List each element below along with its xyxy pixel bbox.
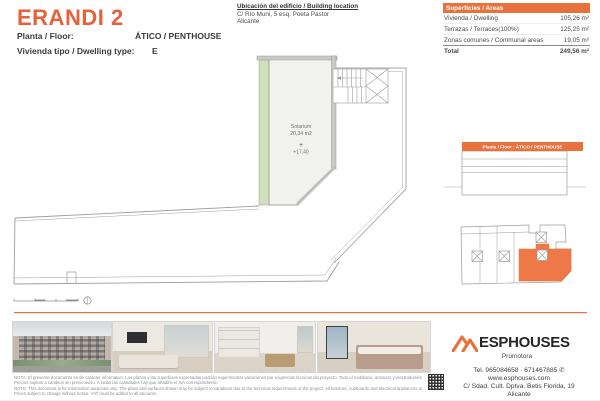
area-value: 125,25 m²	[560, 26, 589, 33]
stair-core-icon	[472, 251, 483, 262]
areas-table: Superficies / Areas Vivienda / Dwelling …	[443, 3, 590, 56]
area-value: 19,05 m²	[564, 37, 589, 44]
brand-phone: Tel. 965084658 · 671467885 ✆	[448, 366, 590, 374]
kitchen-window	[297, 326, 313, 353]
table-row: Vivienda / Dwelling 105,26 m²	[443, 13, 590, 24]
photo-bedroom	[318, 322, 430, 372]
site-plan-key	[461, 225, 571, 284]
photo-building-exterior	[13, 322, 111, 372]
esphouses-house-icon	[452, 331, 478, 352]
planter-strip	[259, 57, 269, 205]
level-value: +17,40	[293, 150, 309, 156]
table-row: Zonas comunes / Communal areas 19,05 m²	[443, 35, 590, 46]
area-value: 105,26 m²	[560, 15, 589, 22]
disclaimer-en-2: Prices subject to change without notice.…	[14, 391, 422, 396]
brand-website: www.esphouses.com	[448, 375, 590, 382]
tv-screen	[127, 332, 147, 343]
table-row: Terrazas / Terraces(100%) 125,25 m²	[443, 24, 590, 35]
areas-table-header: Superficies / Areas	[443, 3, 590, 13]
level-marker-icon: +	[299, 142, 303, 149]
sofa	[119, 355, 178, 368]
kitchen-cabinets	[218, 327, 260, 358]
brand-tagline: Promotora	[452, 353, 582, 360]
brand-address: C/ Sdad. Cult. Dptva. Betis Florida, 19	[448, 383, 590, 390]
photo-living-room	[113, 322, 212, 372]
bed-pillows	[358, 347, 421, 354]
area-label: Terrazas / Terraces(100%)	[444, 26, 519, 33]
section-divider	[14, 312, 587, 313]
room-label: Solarium	[291, 124, 311, 130]
staircase	[333, 69, 388, 103]
elevation-key: Planta / Floor : ÁTICO / PENTHOUSE	[443, 142, 586, 195]
floor-row: Planta / Floor: ÁTICO / PENTHOUSE	[17, 31, 74, 41]
street	[13, 366, 111, 372]
stair-core-icon	[536, 232, 547, 243]
area-label: Zonas comunes / Communal areas	[444, 37, 543, 44]
building-location-address: C/ Río Muni, 5 esq. Poeta Pastor	[237, 11, 407, 19]
area-label: Vivienda / Dwelling	[444, 15, 498, 22]
window-wall	[164, 325, 209, 358]
elevation-floor-label: Planta / Floor : ÁTICO / PENTHOUSE	[483, 143, 563, 149]
roof-band	[14, 206, 339, 284]
building-facade	[19, 336, 105, 361]
photo-kitchen-dining	[215, 322, 315, 372]
building-location-block: Ubicación del edificio / Building locati…	[237, 3, 407, 26]
brand-name: ESPHOUSES	[479, 334, 570, 351]
stair-core-icon	[537, 250, 548, 261]
floor-plan-drawing: Solarium 20,34 m2 + +17,40 Planta / Floo…	[0, 50, 600, 316]
stair-core-icon	[499, 251, 510, 262]
room-area: 20,34 m2	[290, 131, 312, 137]
scale-bar	[14, 299, 78, 302]
highlighted-unit	[519, 244, 571, 281]
bedroom-window	[326, 326, 348, 359]
disclaimer-es-2: Precios sujetos a cambios sin previo avi…	[14, 380, 422, 385]
building-location-city: Alicante	[237, 18, 407, 26]
floor-value: ÁTICO / PENTHOUSE	[135, 31, 221, 41]
flyer-page: ERANDI 2 Planta / Floor: ÁTICO / PENTHOU…	[0, 0, 600, 401]
floor-label: Planta / Floor:	[17, 31, 74, 41]
page-title: ERANDI 2	[17, 5, 124, 31]
brand-city: Alicante	[448, 391, 590, 398]
phone-icon: ✆	[559, 367, 565, 374]
qr-code	[428, 374, 444, 390]
dining-table	[265, 354, 295, 367]
building-location-title: Ubicación del edificio / Building locati…	[237, 3, 407, 11]
